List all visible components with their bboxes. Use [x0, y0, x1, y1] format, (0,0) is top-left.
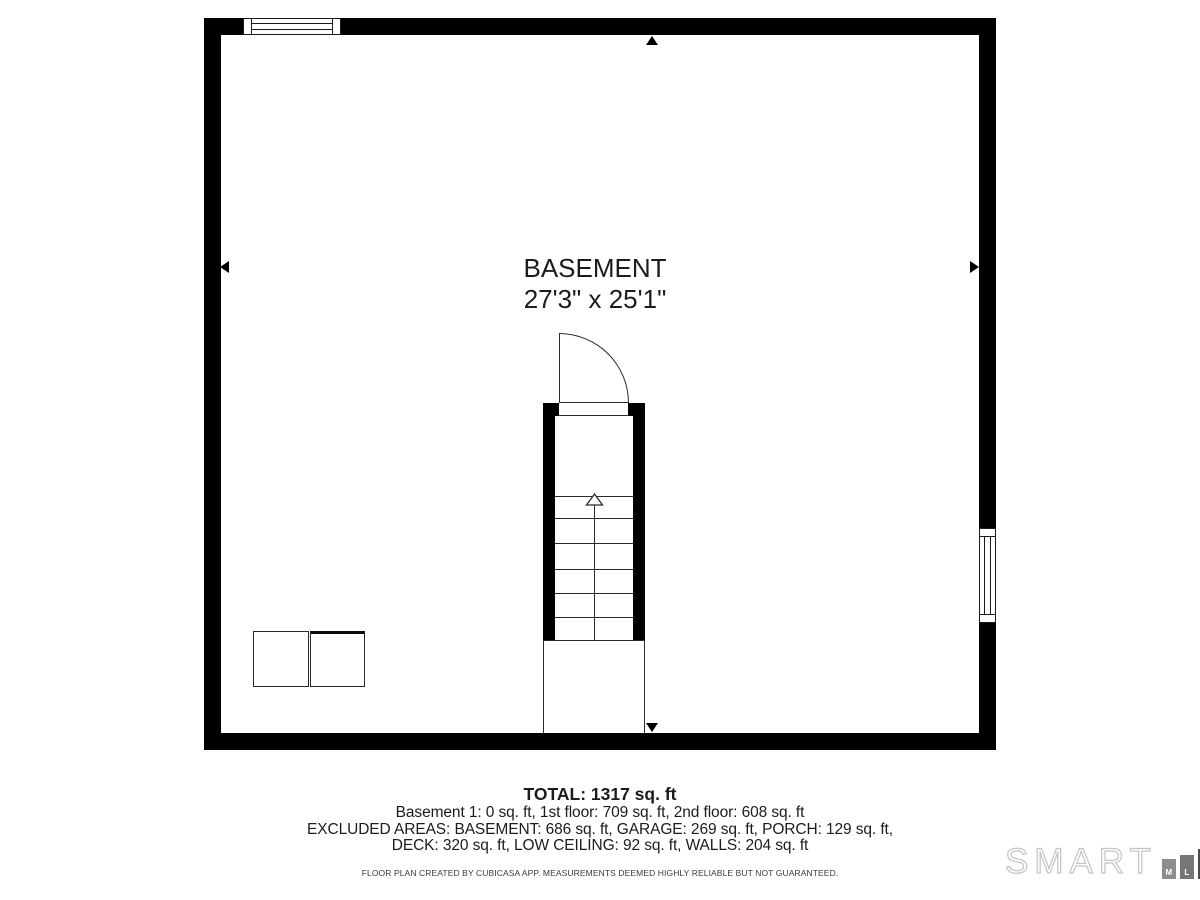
appliance-box: [253, 631, 309, 687]
room-title: BASEMENT: [523, 253, 666, 284]
floor-areas-text: Basement 1: 0 sq. ft, 1st floor: 709 sq.…: [0, 805, 1200, 822]
stair-wall-right: [633, 403, 645, 640]
room-dimensions: 27'3" x 25'1": [523, 284, 666, 315]
smartmls-logo: SMART M L S: [1005, 844, 1200, 880]
window-frame-line: [332, 19, 333, 34]
stair-direction-arrow-icon: [585, 493, 604, 506]
mls-block-m: M: [1162, 859, 1176, 879]
window-top-wall: [243, 18, 341, 35]
floor-plan-page: BASEMENT 27'3" x 25'1" TOTAL: 1317 sq. f…: [0, 0, 1200, 900]
appliance-box: [310, 631, 365, 687]
window-right-wall: [979, 528, 996, 623]
window-pane-line: [984, 537, 991, 614]
total-area-text: TOTAL: 1317 sq. ft: [0, 786, 1200, 803]
door-opening: [559, 402, 628, 416]
window-frame-line: [980, 614, 995, 615]
excluded-areas-text-1: EXCLUDED AREAS: BASEMENT: 686 sq. ft, GA…: [0, 822, 1200, 839]
mls-block-l: L: [1180, 855, 1194, 879]
room-label: BASEMENT 27'3" x 25'1": [523, 253, 666, 315]
extent-arrow-down-icon: [646, 723, 658, 732]
extent-arrow-left-icon: [220, 261, 229, 273]
stair-wall-left: [543, 403, 555, 640]
extent-arrow-right-icon: [970, 261, 979, 273]
mls-blocks: M L S: [1158, 849, 1200, 879]
stair-landing-outline: [543, 640, 645, 733]
window-pane-line: [252, 23, 332, 30]
stair-direction-line: [594, 505, 595, 640]
smartmls-wordmark: SMART: [1005, 844, 1157, 880]
extent-arrow-up-icon: [646, 36, 658, 45]
